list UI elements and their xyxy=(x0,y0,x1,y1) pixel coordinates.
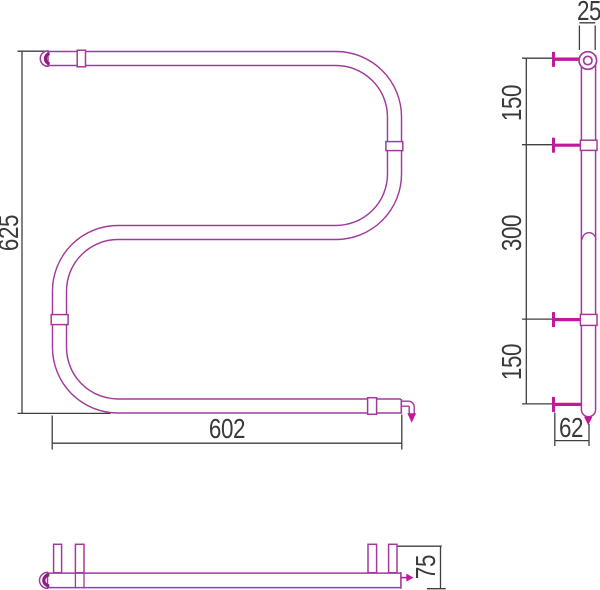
front-view-pipe xyxy=(40,50,416,423)
side-view-brackets xyxy=(554,52,585,412)
dimension-spacing-bottom: 150 xyxy=(498,344,526,380)
dimension-pipe-diameter: 25 xyxy=(577,0,600,25)
dimension-height-total: 625 xyxy=(0,215,23,251)
technical-drawing: 625 602 25 150 300 150 62 75 xyxy=(0,0,600,590)
flow-arrow-down-icon xyxy=(584,417,592,426)
bottom-view-pipe xyxy=(40,544,414,588)
bracket-stubs xyxy=(54,544,397,572)
dimension-width-total: 602 xyxy=(209,415,245,443)
connection-elbow xyxy=(401,399,416,423)
side-view-pipe xyxy=(579,52,597,426)
top-bar-end-circle xyxy=(579,52,597,70)
dimension-wall-offset: 62 xyxy=(559,414,583,442)
dimension-spacing-middle: 300 xyxy=(498,215,526,251)
dimension-spacing-top: 150 xyxy=(498,85,526,121)
dimension-depth: 75 xyxy=(412,555,440,579)
flow-arrow-down-icon xyxy=(407,413,416,423)
